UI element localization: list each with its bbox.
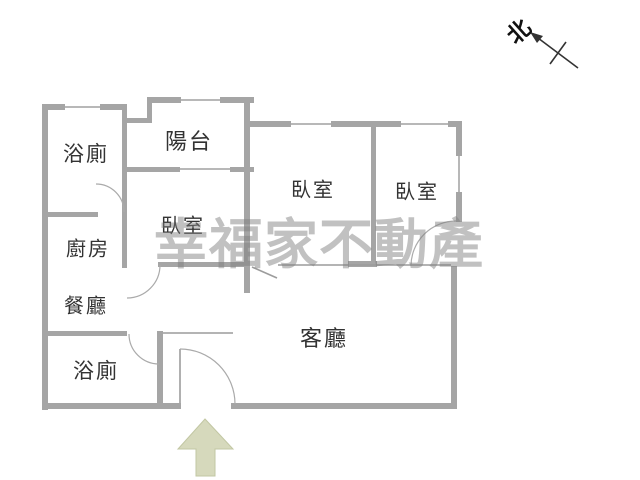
door-arcs — [96, 184, 456, 404]
room-label-bedroom-top: 臥室 — [291, 174, 335, 203]
north-arrow-icon — [530, 32, 578, 68]
room-label-bathroom-bottom: 浴廁 — [73, 355, 119, 385]
room-label-bathroom-top: 浴廁 — [63, 138, 109, 168]
room-label-kitchen: 廚房 — [66, 233, 110, 262]
room-label-living: 客廳 — [300, 321, 348, 353]
room-label-bedroom-right: 臥室 — [395, 176, 439, 205]
entrance-arrow-icon — [178, 419, 233, 476]
floor-plan-page: 浴廁 陽台 臥室 臥室 臥室 廚房 餐廳 浴廁 客廳 幸福家不動產 北 — [0, 0, 640, 480]
room-label-dining: 餐廳 — [64, 290, 108, 319]
room-label-balcony: 陽台 — [165, 124, 213, 156]
room-label-bedroom-middle: 臥室 — [161, 210, 205, 239]
